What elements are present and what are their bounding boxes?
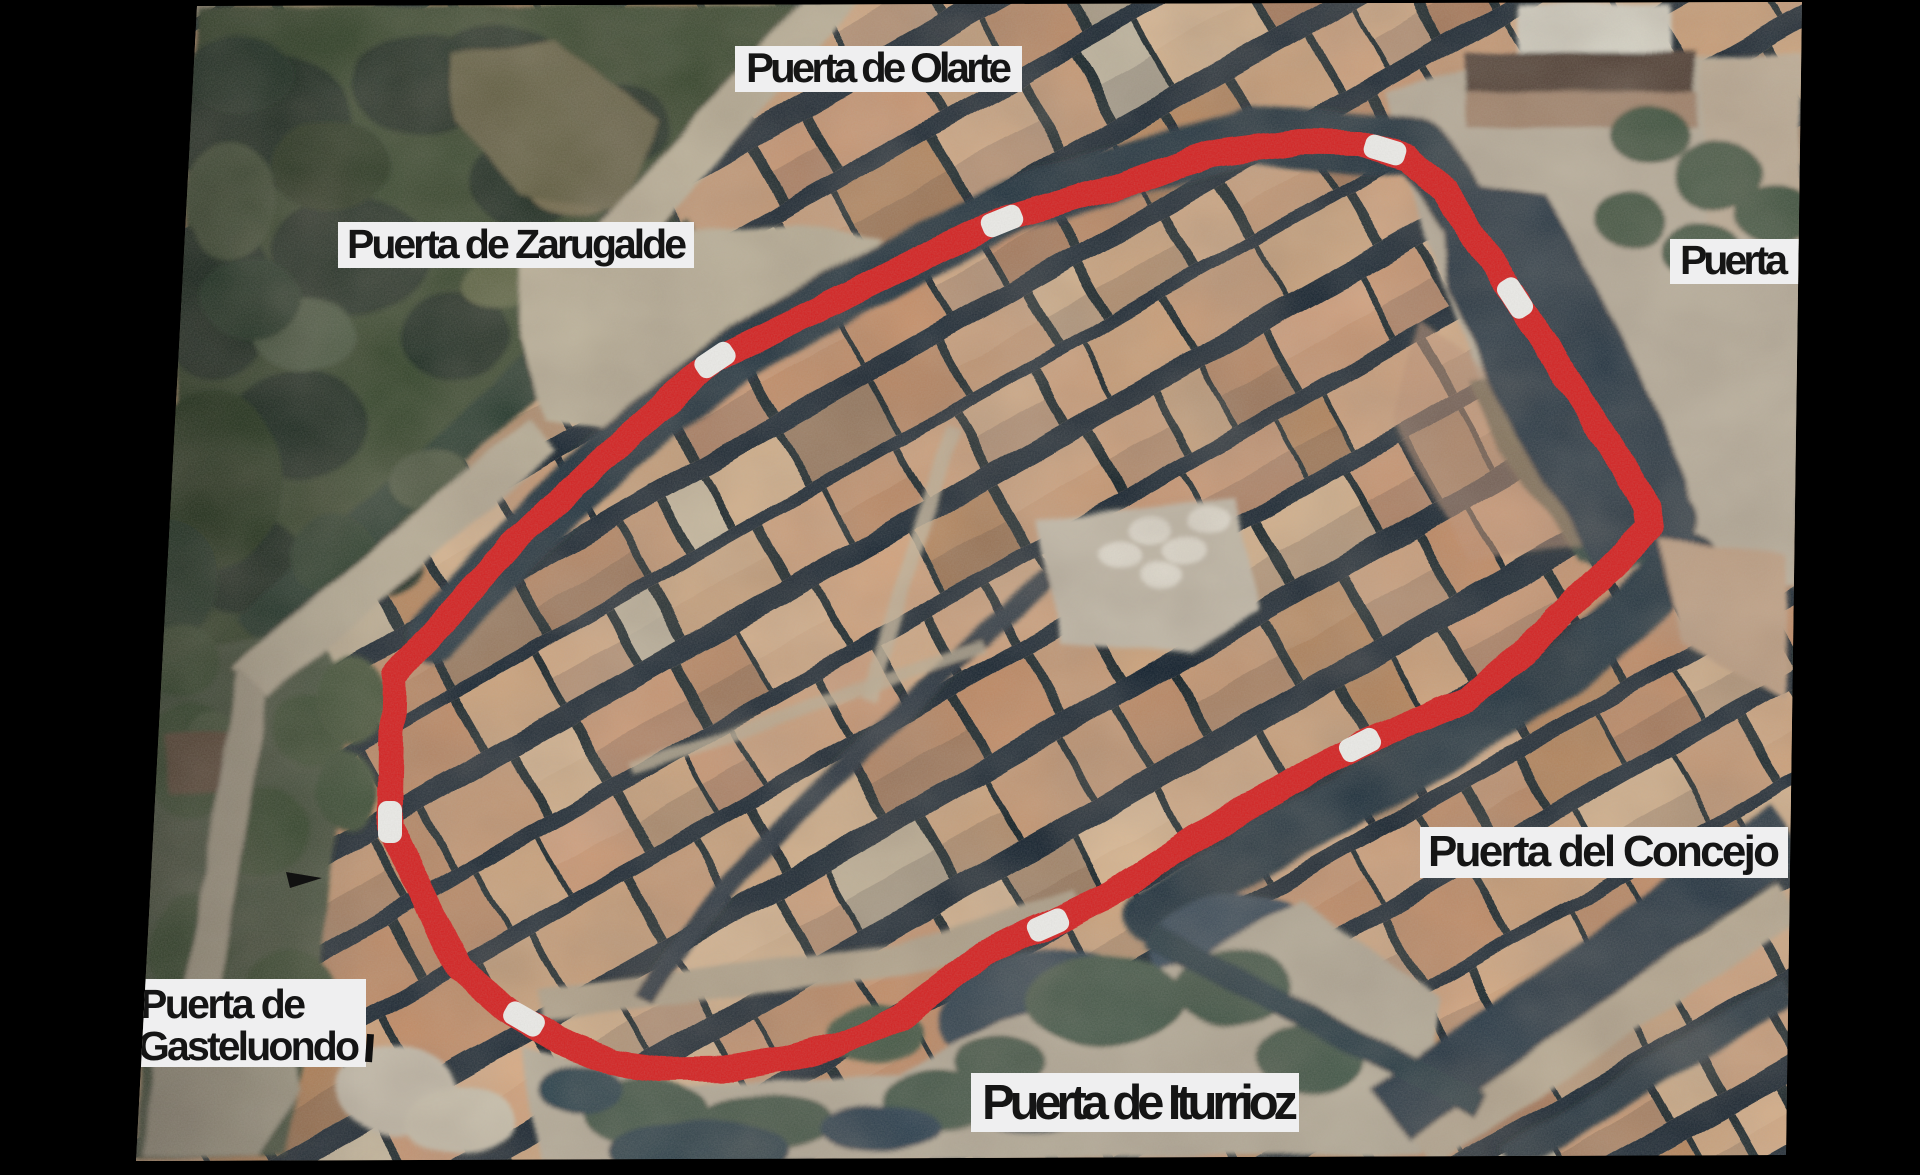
svg-text:Puerta de: Puerta de [140,981,306,1027]
svg-text:Puerta de Olarte: Puerta de Olarte [746,44,1012,91]
svg-text:Gasteluondo: Gasteluondo [138,1023,360,1069]
svg-text:Puerta de Iturrioz: Puerta de Iturrioz [982,1076,1298,1130]
svg-text:Puerta del Concejo: Puerta del Concejo [1428,827,1780,876]
svg-text:Puerta de Zarugalde: Puerta de Zarugalde [347,221,687,267]
svg-text:Puerta: Puerta [1680,237,1789,283]
